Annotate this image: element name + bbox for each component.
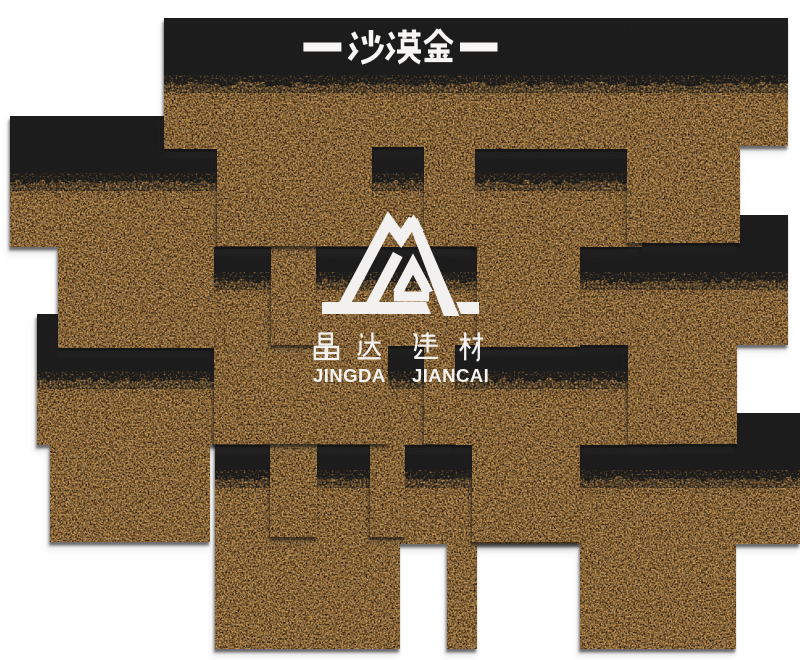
svg-text:JIANCAI: JIANCAI: [412, 365, 489, 386]
svg-text:JINGDA: JINGDA: [313, 365, 386, 386]
